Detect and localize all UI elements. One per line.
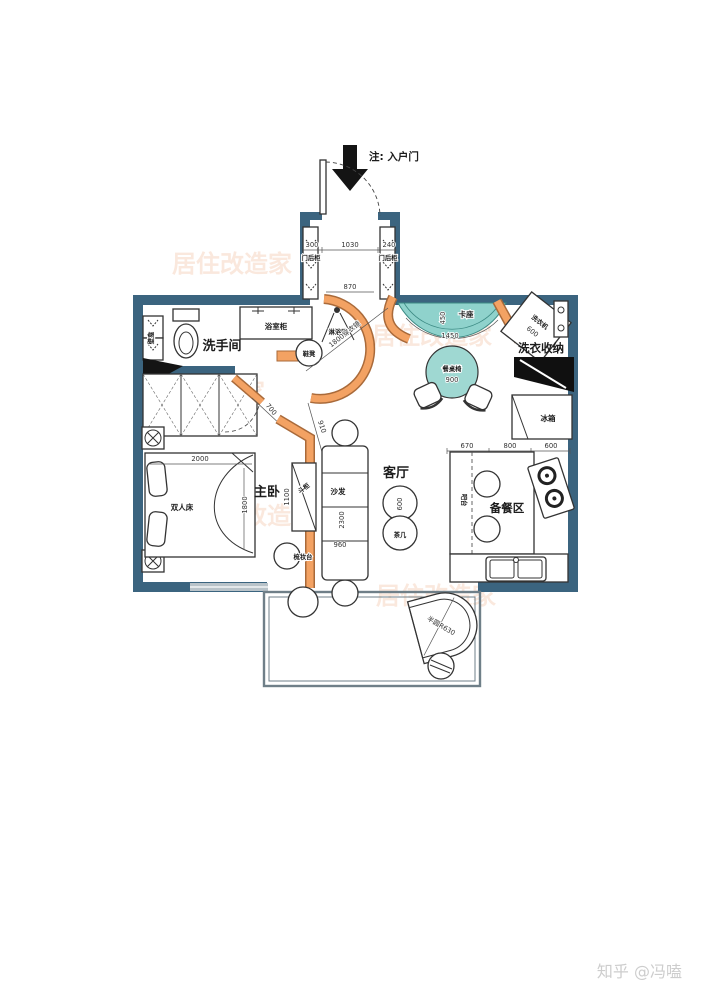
living-room: 沙发 2300 960 客厅 600 茶几 (322, 420, 417, 606)
chest-dim: 1100 (283, 488, 291, 505)
dim-700: 700 (264, 402, 278, 417)
booth-label: 卡座 (459, 309, 474, 319)
tea-table-dim: 600 (396, 498, 404, 511)
laundry-name: 洗衣收纳 (518, 341, 564, 355)
entry-cabinet-left-label: 门后柜 (302, 253, 322, 262)
sofa: 沙发 2300 960 (322, 446, 368, 580)
pillow (146, 511, 167, 547)
entry-note: 注: 入户门 (369, 150, 419, 163)
sink (486, 557, 546, 581)
balcony-stool (288, 587, 318, 617)
booth-arc-dim: 1450 (441, 332, 458, 340)
floor-plan-canvas: 居住改造家 居住改造家 居住改造家 居住改造家 居住改造家 注: 入户门 (0, 0, 720, 1005)
tea-table-label: 茶几 (393, 530, 407, 539)
sofa-label: 沙发 (331, 486, 346, 496)
bathroom-niche: 壁龛 (143, 316, 163, 360)
bed-width-dim: 2000 (191, 455, 208, 463)
side-table (332, 580, 358, 606)
watermark-text: 居住改造家 (172, 250, 292, 278)
dim-870: 870 (344, 283, 357, 291)
entry-door-leaf (320, 160, 326, 214)
prep-area-name: 备餐区 (489, 501, 525, 515)
niche-label: 壁龛 (146, 331, 155, 344)
kitchen: 670 800 600 吧台 备餐区 (447, 442, 575, 582)
dressing-table-label: 梳妆台 (294, 552, 313, 561)
kitchen-dim-mid: 800 (504, 442, 517, 450)
side-table (332, 420, 358, 446)
dim-300: 300 (306, 241, 319, 249)
column (142, 427, 164, 449)
bathroom-name: 洗手间 (202, 338, 241, 354)
bed-label: 双人床 (171, 502, 194, 512)
bar-stool (474, 471, 500, 497)
zhihu-credit: 知乎 @冯嗑 (597, 962, 682, 981)
shoe-stool-label: 鞋凳 (303, 349, 316, 358)
floor-plan-page: 居住改造家 居住改造家 居住改造家 居住改造家 居住改造家 注: 入户门 (0, 0, 720, 1005)
vanity-label: 浴室柜 (265, 321, 288, 331)
tea-tables: 600 茶几 (383, 486, 417, 550)
dim-1030: 1030 (341, 241, 358, 249)
toilet (173, 309, 199, 358)
booth-dim: 450 (439, 312, 447, 325)
dining-table-dim: 900 (446, 376, 459, 384)
bed-depth-dim: 1800 (241, 496, 249, 513)
wall-unit (554, 301, 568, 337)
entry-cabinet-right-label: 门后柜 (379, 253, 399, 262)
vanity-cabinet: 浴室柜 (240, 307, 312, 339)
dining-table-label: 餐桌椅 (443, 364, 463, 373)
entrance: 注: 入户门 门后柜 门后柜 300 1030 240 870 (302, 145, 419, 299)
laundry: 洗衣机 600 洗衣收纳 冰箱 (497, 292, 574, 439)
double-bed: 2000 1800 双人床 (145, 453, 255, 557)
bar-label: 吧台 (460, 494, 469, 507)
living-room-name: 客厅 (383, 465, 409, 481)
bedroom-name: 主卧 (254, 484, 280, 500)
sofa-length-dim: 2300 (338, 511, 346, 528)
kitchen-dim-left: 670 (461, 442, 474, 450)
dim-910: 910 (316, 419, 328, 434)
pillow (146, 461, 167, 497)
fridge: 冰箱 (512, 395, 572, 439)
kitchen-dim-right: 600 (545, 442, 558, 450)
dining: 450 卡座 1450 餐桌椅 900 (398, 303, 506, 413)
bar-stool (474, 516, 500, 542)
sofa-width-dim: 960 (334, 541, 347, 549)
dim-240: 240 (383, 241, 396, 249)
fridge-label: 冰箱 (541, 413, 556, 423)
